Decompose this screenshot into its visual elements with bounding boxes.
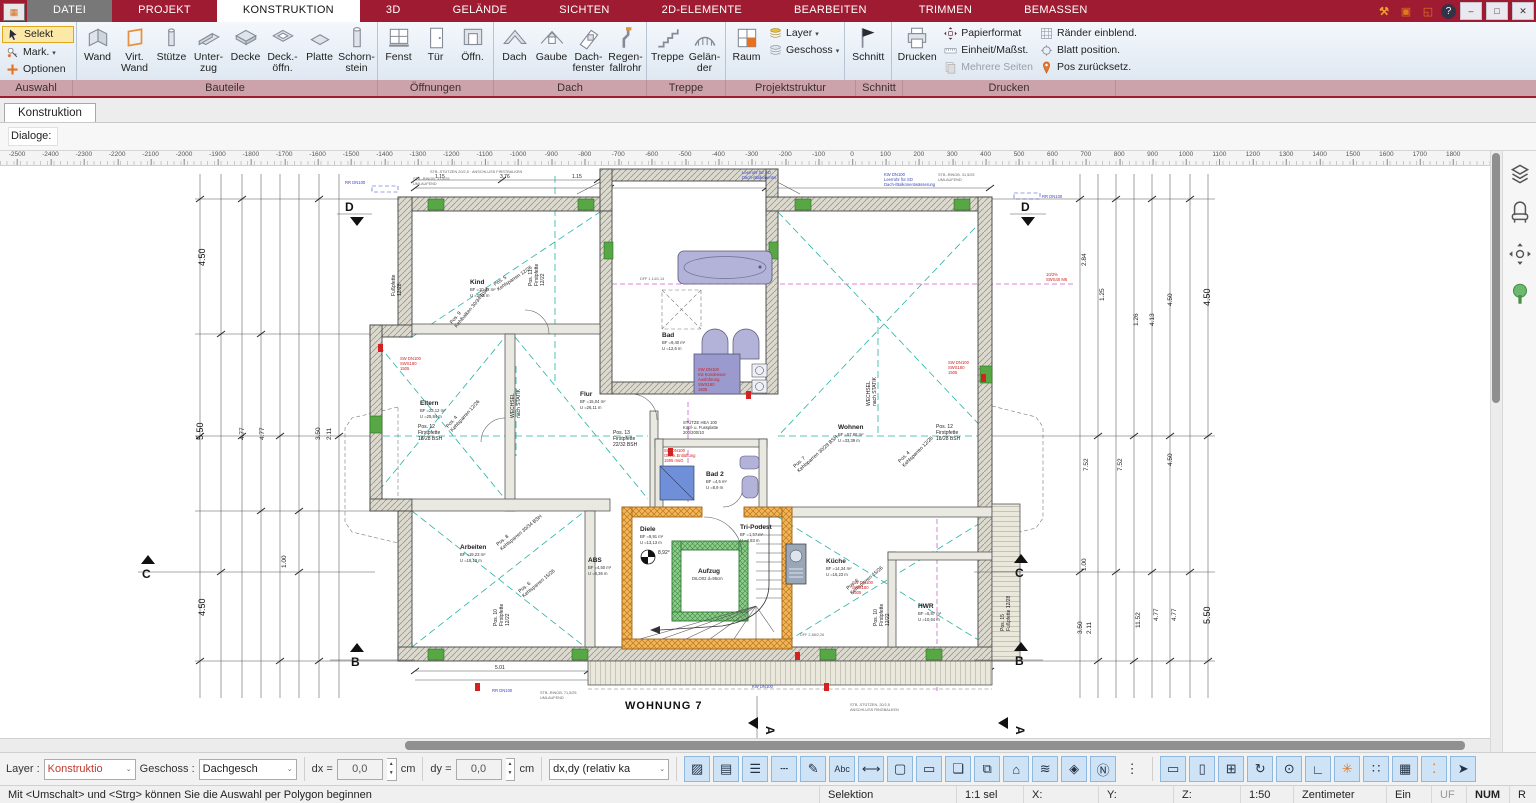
tab-2d-elemente[interactable]: 2D-ELEMENTE bbox=[636, 0, 768, 22]
dialog-bar: Dialoge: bbox=[0, 123, 1536, 151]
downpipe-icon bbox=[623, 27, 631, 48]
ruler-icon[interactable]: ▭ bbox=[1160, 756, 1186, 782]
app-icon[interactable]: ▦ bbox=[3, 3, 25, 21]
ruler-label: 300 bbox=[947, 151, 958, 158]
svg-text:1595 müG: 1595 müG bbox=[664, 458, 684, 463]
svg-text:C: C bbox=[142, 567, 151, 581]
svg-text:U =16,23 m: U =16,23 m bbox=[826, 572, 848, 577]
ruler-label: 600 bbox=[1047, 151, 1058, 158]
roof-window-label: Dach- fenster bbox=[572, 52, 604, 74]
ruler-label: -1300 bbox=[409, 151, 426, 158]
document-tab-konstruktion[interactable]: Konstruktion bbox=[4, 103, 96, 122]
opening-button[interactable]: Öffn. bbox=[454, 23, 491, 79]
multiple-pages-button[interactable]: Mehrere Seiten bbox=[940, 60, 1036, 75]
ruler-label: -1400 bbox=[376, 151, 393, 158]
dx-unit: cm bbox=[401, 763, 416, 775]
fill-color-icon[interactable]: ▤ bbox=[713, 756, 739, 782]
dimension-chain-left: 4.50 5.50 4.50 4.77 4.77 1.00 3.50 2.11 bbox=[195, 174, 398, 698]
dimension-icon[interactable]: ⟷ bbox=[858, 756, 884, 782]
downpipe-button[interactable]: Regen- fallrohr bbox=[607, 23, 644, 79]
svg-text:1505: 1505 bbox=[400, 366, 410, 371]
opening-icon bbox=[464, 29, 481, 44]
svg-text:BF =19,23 m²: BF =19,23 m² bbox=[460, 552, 486, 557]
svg-text:DFF 2,88/2,26: DFF 2,88/2,26 bbox=[800, 633, 824, 637]
svg-text:C: C bbox=[1015, 566, 1024, 580]
svg-text:22/32 BSH: 22/32 BSH bbox=[613, 442, 638, 448]
vegetation-icon[interactable] bbox=[1507, 281, 1533, 307]
options-button[interactable]: Optionen bbox=[2, 62, 74, 77]
vertical-scrollbar[interactable] bbox=[1491, 151, 1503, 752]
document-tab-strip: Konstruktion bbox=[0, 98, 1536, 123]
svg-text:12/22: 12/22 bbox=[505, 613, 511, 626]
layer-label: Layer bbox=[786, 28, 812, 39]
svg-text:U =33,39 m: U =33,39 m bbox=[838, 438, 860, 443]
svg-text:5.50: 5.50 bbox=[195, 422, 205, 440]
ruler-label: -300 bbox=[745, 151, 758, 158]
svg-text:Eltern: Eltern bbox=[420, 400, 438, 407]
svg-text:U =25,84 m: U =25,84 m bbox=[420, 414, 442, 419]
svg-text:3.50: 3.50 bbox=[1077, 621, 1084, 634]
dy-unit: cm bbox=[519, 763, 534, 775]
plus-icon bbox=[8, 65, 18, 75]
storey-combobox[interactable]: Dachgesch⌄ bbox=[199, 759, 297, 780]
svg-text:nach STATIK: nach STATIK bbox=[516, 388, 522, 418]
beam-button[interactable]: Unter- zug bbox=[190, 23, 227, 79]
pan-view-icon[interactable] bbox=[1507, 241, 1533, 267]
settings-tools-icon[interactable]: ⚒ bbox=[1375, 3, 1393, 19]
bottom-toolbar: Layer : Konstruktio⌄ Geschoss : Dachgesc… bbox=[0, 752, 1536, 785]
horizontal-scrollbar[interactable] bbox=[0, 738, 1490, 752]
line-weight-icon[interactable]: ☰ bbox=[742, 756, 768, 782]
bath-cabinet: SW DN100 mit Kondensat- Ausführung SWS18… bbox=[694, 354, 740, 394]
svg-text:2.84: 2.84 bbox=[1081, 253, 1088, 266]
ruler-label: 500 bbox=[1014, 151, 1025, 158]
multiple-pages-icon bbox=[946, 63, 955, 74]
svg-text:4.50: 4.50 bbox=[1167, 453, 1174, 466]
beam-icon bbox=[199, 34, 219, 45]
stairs-label: Treppe bbox=[651, 52, 684, 63]
svg-text:200/200/10: 200/200/10 bbox=[683, 430, 705, 435]
ruler-label: 700 bbox=[1080, 151, 1091, 158]
svg-text:SWS40 M6: SWS40 M6 bbox=[1046, 277, 1068, 282]
svg-text:1.26: 1.26 bbox=[1133, 313, 1140, 326]
svg-text:UMLAUFEND: UMLAUFEND bbox=[413, 182, 437, 186]
svg-text:D: D bbox=[345, 200, 354, 214]
sheet-position-icon bbox=[1041, 45, 1052, 56]
svg-text:Kehlsparren 30/34 BSH: Kehlsparren 30/34 BSH bbox=[499, 514, 543, 553]
ruler-label: 1300 bbox=[1279, 151, 1293, 158]
tab-bearbeiten[interactable]: BEARBEITEN bbox=[768, 0, 893, 22]
storey-field-label: Geschoss : bbox=[140, 763, 195, 775]
ruler-label: -900 bbox=[545, 151, 558, 158]
svg-text:DILO02 d=95cm: DILO02 d=95cm bbox=[692, 576, 723, 581]
svg-text:D: D bbox=[1021, 200, 1030, 214]
ruler-label: -1000 bbox=[510, 151, 527, 158]
rotate-view-icon[interactable]: ↻ bbox=[1247, 756, 1273, 782]
dy-stepper[interactable]: ▲▼ bbox=[506, 758, 516, 781]
north-icon[interactable]: Ⓝ bbox=[1090, 756, 1116, 782]
dormer-button[interactable]: Gaube bbox=[533, 23, 570, 79]
plate-button[interactable]: Platte bbox=[301, 23, 338, 79]
ruler-label: -800 bbox=[578, 151, 591, 158]
svg-text:nach STATIK: nach STATIK bbox=[872, 376, 878, 406]
status-selection-scale: 1:1 sel bbox=[956, 786, 1023, 803]
terrace-strip bbox=[992, 504, 1020, 661]
unit-scale-icon bbox=[945, 49, 956, 53]
layer-button[interactable]: Layer▾ bbox=[765, 26, 842, 41]
svg-text:8,92°: 8,92° bbox=[658, 550, 670, 556]
page-icon[interactable]: ▯ bbox=[1189, 756, 1215, 782]
tab-gel-nde[interactable]: GELÄNDE bbox=[427, 0, 534, 22]
wall-label: Wand bbox=[84, 52, 111, 63]
virtual-wall-icon bbox=[128, 29, 141, 45]
svg-text:1505: 1505 bbox=[948, 370, 958, 375]
unit-scale-label: Einheit/Maßst. bbox=[961, 45, 1028, 56]
roof-label: Dach bbox=[502, 52, 527, 63]
svg-text:1.00: 1.00 bbox=[281, 555, 288, 568]
status-r: R bbox=[1509, 786, 1536, 803]
paper-format-label: Papierformat bbox=[961, 28, 1021, 39]
select-label: Selekt bbox=[24, 29, 53, 40]
svg-text:Dach-/Balkonentw.: Dach-/Balkonentw. bbox=[742, 175, 777, 180]
status-unit: Zentimeter bbox=[1293, 786, 1386, 803]
svg-text:5.50: 5.50 bbox=[1202, 606, 1212, 624]
roof-icon bbox=[504, 30, 526, 43]
room-label: Raum bbox=[732, 52, 760, 63]
dormer-icon bbox=[541, 32, 563, 44]
group-caption-schnitt: Schnitt bbox=[856, 80, 903, 96]
tile-icon[interactable]: ◈ bbox=[1061, 756, 1087, 782]
ruler-label: -2300 bbox=[75, 151, 92, 158]
tab-konstruktion[interactable]: KONSTRUKTION bbox=[217, 0, 360, 22]
svg-text:BF =1,57 m²: BF =1,57 m² bbox=[740, 532, 764, 537]
drawing-canvas[interactable]: 4.50 5.50 4.50 4.77 4.77 1.00 3.50 2.11 bbox=[0, 166, 1490, 738]
railing-label: Gelän- der bbox=[689, 52, 721, 74]
balcony-strip bbox=[588, 661, 992, 685]
section-label: Schnitt bbox=[852, 52, 884, 63]
unit-scale-button[interactable]: Einheit/Maßst. bbox=[940, 43, 1036, 58]
monitor-icon[interactable]: ◱ bbox=[1419, 3, 1437, 19]
paper-format-button[interactable]: Papierformat bbox=[940, 26, 1036, 41]
svg-text:1.25: 1.25 bbox=[1099, 288, 1106, 301]
corner-icon[interactable]: ∟ bbox=[1305, 756, 1331, 782]
ruler-label: -1100 bbox=[477, 151, 493, 158]
grid-snap-icon[interactable]: ∷ bbox=[1363, 756, 1389, 782]
svg-text:Bad: Bad bbox=[662, 332, 674, 339]
dx-label: dx = bbox=[312, 763, 333, 775]
status-ein: Ein bbox=[1386, 786, 1431, 803]
svg-text:B: B bbox=[1015, 654, 1024, 668]
status-z: Z: bbox=[1173, 786, 1240, 803]
svg-text:STB.-RINGB. 31,5/25: STB.-RINGB. 31,5/25 bbox=[413, 177, 450, 181]
svg-text:U =10,64 m: U =10,64 m bbox=[918, 617, 940, 622]
room-button[interactable]: Raum bbox=[728, 23, 765, 79]
svg-text:2.11: 2.11 bbox=[1086, 621, 1093, 634]
ref-point-icon[interactable]: ⊙ bbox=[1276, 756, 1302, 782]
svg-text:Kind: Kind bbox=[470, 279, 484, 286]
bathtub bbox=[678, 251, 772, 284]
ceiling-opening-button[interactable]: Deck.- öffn. bbox=[264, 23, 301, 79]
layer-combobox[interactable]: Konstruktio⌄ bbox=[44, 759, 136, 780]
show-margins-icon bbox=[1042, 29, 1052, 39]
svg-text:BF =4,50 m²: BF =4,50 m² bbox=[588, 565, 612, 570]
roof-window-icon bbox=[580, 30, 597, 48]
window-button[interactable]: Fenst bbox=[380, 23, 417, 79]
tab-bemassen[interactable]: BEMASSEN bbox=[998, 0, 1114, 22]
svg-text:18/28 BSH: 18/28 BSH bbox=[418, 436, 443, 442]
sheet-position-button[interactable]: Blatt position. bbox=[1036, 43, 1140, 58]
ruler-label: 1100 bbox=[1212, 151, 1226, 158]
svg-text:4.50: 4.50 bbox=[1202, 288, 1212, 306]
storey-icon bbox=[771, 46, 781, 55]
pen-icon[interactable]: ✎ bbox=[800, 756, 826, 782]
storey-label: Geschoss bbox=[786, 45, 833, 56]
ruler-label: 1500 bbox=[1346, 151, 1360, 158]
wall-icon bbox=[89, 29, 106, 45]
ceiling-opening-icon bbox=[273, 30, 293, 41]
storey-value: Dachgesch bbox=[203, 763, 258, 775]
floor-plan: 4.50 5.50 4.50 4.77 4.77 1.00 3.50 2.11 bbox=[0, 166, 1490, 738]
ruler-label: 100 bbox=[880, 151, 891, 158]
ruler-label: 0 bbox=[850, 151, 854, 158]
ceiling-opening-label: Deck.- öffn. bbox=[267, 52, 297, 74]
show-margins-button[interactable]: Ränder einblend. bbox=[1036, 26, 1140, 41]
svg-text:BF =14,34 m²: BF =14,34 m² bbox=[826, 566, 852, 571]
snap-point-icon[interactable]: ✳ bbox=[1334, 756, 1360, 782]
svg-text:RR DN100: RR DN100 bbox=[345, 180, 366, 185]
tab-trimmen[interactable]: TRIMMEN bbox=[893, 0, 998, 22]
group-caption-oeffnungen: Öffnungen bbox=[378, 80, 494, 96]
line-style-icon[interactable]: ┄ bbox=[771, 756, 797, 782]
horizontal-scroll-thumb[interactable] bbox=[405, 741, 1465, 750]
svg-text:DFF 1,14/1,14: DFF 1,14/1,14 bbox=[640, 277, 664, 281]
svg-text:12/28: 12/28 bbox=[397, 283, 403, 296]
kitchen-sink bbox=[786, 544, 806, 584]
svg-text:BF =9,40 m²: BF =9,40 m² bbox=[662, 340, 686, 345]
status-mode: Selektion bbox=[819, 786, 956, 803]
svg-text:12/22: 12/22 bbox=[885, 613, 891, 626]
dx-stepper[interactable]: ▲▼ bbox=[387, 758, 397, 781]
svg-text:U =8,9 m: U =8,9 m bbox=[706, 485, 724, 490]
svg-text:Wohnen: Wohnen bbox=[838, 424, 864, 431]
ruler-label: -200 bbox=[779, 151, 792, 158]
grid-icon[interactable]: ▦ bbox=[1392, 756, 1418, 782]
reset-position-label: Pos zurücksetz. bbox=[1057, 62, 1131, 73]
ruler-label: -2400 bbox=[42, 151, 59, 158]
column-button[interactable]: Stütze bbox=[153, 23, 190, 79]
ceiling-icon bbox=[236, 30, 256, 44]
print-button[interactable]: Drucken bbox=[894, 23, 940, 79]
dy-input[interactable]: 0,0 bbox=[456, 759, 502, 780]
sheet-position-label: Blatt position. bbox=[1057, 45, 1120, 56]
coordinate-mode-value: dx,dy (relativ ka bbox=[553, 763, 630, 775]
railing-button[interactable]: Gelän- der bbox=[686, 23, 723, 79]
svg-text:Diele: Diele bbox=[640, 526, 656, 533]
svg-text:A: A bbox=[1013, 726, 1027, 735]
ceiling-label: Decke bbox=[231, 52, 261, 63]
furniture-icon[interactable] bbox=[1507, 201, 1533, 227]
ruler-label: -700 bbox=[612, 151, 625, 158]
virtual-wall-button[interactable]: Virt. Wand bbox=[116, 23, 153, 79]
svg-text:B: B bbox=[351, 655, 360, 669]
svg-text:BF =23,12 m²: BF =23,12 m² bbox=[420, 408, 446, 413]
svg-text:BF =9,91 m²: BF =9,91 m² bbox=[640, 534, 664, 539]
column-label: Stütze bbox=[157, 52, 187, 63]
group-caption-auswahl: Auswahl bbox=[0, 80, 73, 96]
virtual-wall-label: Virt. Wand bbox=[121, 52, 148, 74]
column-icon bbox=[168, 29, 173, 46]
svg-text:1505: 1505 bbox=[852, 590, 862, 595]
reset-position-button[interactable]: Pos zurücksetz. bbox=[1036, 60, 1140, 75]
svg-text:Aufzug: Aufzug bbox=[698, 568, 720, 575]
horizontal-ruler: -2500-2400-2300-2200-2100-2000-1900-1800… bbox=[0, 151, 1490, 166]
ruler-label: -1800 bbox=[242, 151, 259, 158]
svg-text:7.52: 7.52 bbox=[1083, 458, 1090, 471]
status-uf: UF bbox=[1431, 786, 1466, 803]
cursor-icon bbox=[9, 29, 17, 41]
north-symbol: 8,92° bbox=[641, 550, 670, 564]
svg-text:U =18,13 m: U =18,13 m bbox=[460, 558, 482, 563]
svg-text:4.77: 4.77 bbox=[239, 427, 246, 440]
ruler-label: -1900 bbox=[209, 151, 226, 158]
coordinate-mode-combobox[interactable]: dx,dy (relativ ka⌄ bbox=[549, 759, 669, 780]
stairs-icon bbox=[658, 29, 678, 46]
ruler-label: 1700 bbox=[1413, 151, 1427, 158]
svg-text:U =26,11 m: U =26,11 m bbox=[580, 405, 602, 410]
ruler-label: 1400 bbox=[1312, 151, 1326, 158]
text-abc-icon[interactable]: Abc bbox=[829, 756, 855, 782]
tab-3d[interactable]: 3D bbox=[360, 0, 427, 22]
dialoge-label: Dialoge: bbox=[8, 127, 58, 146]
svg-text:3.76: 3.76 bbox=[500, 174, 510, 180]
status-num: NUM bbox=[1466, 786, 1509, 803]
snap-settings-icon[interactable]: ⁚ bbox=[1421, 756, 1447, 782]
tab-projekt[interactable]: PROJEKT bbox=[112, 0, 217, 22]
marquee-icon[interactable]: ▢ bbox=[887, 756, 913, 782]
select-button[interactable]: Selekt bbox=[2, 26, 74, 43]
dormer-label: Gaube bbox=[536, 52, 568, 63]
beam-label: Unter- zug bbox=[194, 52, 223, 74]
group-caption-projektstruktur: Projektstruktur bbox=[726, 80, 856, 96]
roof-tool-icon[interactable]: ⌂ bbox=[1003, 756, 1029, 782]
chimney-button[interactable]: Schorn- stein bbox=[338, 23, 375, 79]
svg-text:18/28 BSH: 18/28 BSH bbox=[936, 436, 961, 442]
status-x: X: bbox=[1023, 786, 1098, 803]
ruler-label: 1000 bbox=[1179, 151, 1193, 158]
ruler-label: -2100 bbox=[142, 151, 159, 158]
section-button[interactable]: Schnitt bbox=[847, 23, 889, 79]
copy-layers-icon[interactable]: ❏ bbox=[945, 756, 971, 782]
deselect-cursor-icon[interactable]: ➤ bbox=[1450, 756, 1476, 782]
multiple-pages-label: Mehrere Seiten bbox=[961, 62, 1033, 73]
ceiling-button[interactable]: Decke bbox=[227, 23, 264, 79]
minimize-button[interactable]: – bbox=[1460, 2, 1482, 20]
layer-stack-icon[interactable]: ≋ bbox=[1032, 756, 1058, 782]
svg-text:U =8,36 m: U =8,36 m bbox=[588, 571, 608, 576]
ruler-label: -2200 bbox=[109, 151, 126, 158]
svg-text:5.01: 5.01 bbox=[495, 665, 505, 671]
group-caption-bauteile: Bauteile bbox=[73, 80, 378, 96]
door-icon bbox=[430, 28, 442, 48]
more-dots-icon[interactable]: ⋮ bbox=[1119, 756, 1145, 782]
svg-text:4.50: 4.50 bbox=[197, 248, 207, 266]
module-icon[interactable]: ▣ bbox=[1397, 3, 1415, 19]
dy-label: dy = bbox=[430, 763, 451, 775]
restore-button[interactable]: □ bbox=[1486, 2, 1508, 20]
group-caption-drucken: Drucken bbox=[903, 80, 1116, 96]
help-icon[interactable]: ? bbox=[1441, 4, 1456, 19]
wall-button[interactable]: Wand bbox=[79, 23, 116, 79]
ruler-label: -100 bbox=[812, 151, 825, 158]
window-icon bbox=[389, 29, 409, 46]
roof-button[interactable]: Dach bbox=[496, 23, 533, 79]
room-icon bbox=[738, 29, 755, 46]
downpipe-label: Regen- fallrohr bbox=[608, 52, 642, 74]
ruler-label: -2000 bbox=[176, 151, 193, 158]
mark-button[interactable]: Mark.▾ bbox=[2, 45, 74, 60]
roof-window-button[interactable]: Dach- fenster bbox=[570, 23, 607, 79]
reset-position-icon bbox=[1043, 62, 1049, 73]
railing-icon bbox=[695, 37, 715, 45]
rectangle-icon[interactable]: ▭ bbox=[916, 756, 942, 782]
svg-text:4.50: 4.50 bbox=[1167, 293, 1174, 306]
vertical-scroll-thumb[interactable] bbox=[1492, 153, 1500, 403]
chimney-label: Schorn- stein bbox=[338, 52, 375, 74]
mark-icon bbox=[8, 48, 17, 57]
status-bar: Mit <Umschalt> und <Strg> können Sie die… bbox=[0, 785, 1536, 803]
ruler-label: -1500 bbox=[343, 151, 360, 158]
ruler-label: -1200 bbox=[443, 151, 460, 158]
door-button[interactable]: Tür bbox=[417, 23, 454, 79]
ruler-label: -500 bbox=[678, 151, 691, 158]
svg-text:STB.-RINGB. 31,5/25: STB.-RINGB. 31,5/25 bbox=[938, 173, 975, 177]
window-grid-icon[interactable]: ⊞ bbox=[1218, 756, 1244, 782]
printer-icon bbox=[909, 28, 926, 48]
ruler-label: 1800 bbox=[1446, 151, 1460, 158]
svg-text:Tri-Podest: Tri-Podest bbox=[740, 524, 773, 531]
storey-button[interactable]: Geschoss▾ bbox=[765, 43, 842, 58]
svg-text:RR DN100: RR DN100 bbox=[1042, 194, 1063, 199]
group-caption-treppe: Treppe bbox=[647, 80, 726, 96]
svg-text:UMLAUFEND: UMLAUFEND bbox=[938, 178, 962, 182]
ruler-label: -400 bbox=[712, 151, 725, 158]
plan-title: WOHNUNG 7 bbox=[625, 700, 702, 712]
door-label: Tür bbox=[428, 52, 444, 63]
opening-label: Öffn. bbox=[461, 52, 484, 63]
svg-text:1505: 1505 bbox=[698, 387, 708, 392]
tab-sichten[interactable]: SICHTEN bbox=[533, 0, 635, 22]
move-copy-icon[interactable]: ⧉ bbox=[974, 756, 1000, 782]
plate-label: Platte bbox=[306, 52, 333, 63]
show-margins-label: Ränder einblend. bbox=[1057, 28, 1137, 39]
plate-icon bbox=[311, 35, 328, 45]
ruler-label: -600 bbox=[645, 151, 658, 158]
layers-panes-icon[interactable] bbox=[1507, 161, 1533, 187]
svg-text:STB.-STÜTZEN, 20/2,5: STB.-STÜTZEN, 20/2,5 bbox=[850, 703, 890, 707]
svg-text:Küche: Küche bbox=[826, 558, 846, 565]
svg-text:4.13: 4.13 bbox=[1149, 313, 1156, 326]
svg-text:Dach-/Balkonentwässerung: Dach-/Balkonentwässerung bbox=[884, 182, 936, 187]
dx-input[interactable]: 0,0 bbox=[337, 759, 383, 780]
svg-text:Fußpfette 12/28: Fußpfette 12/28 bbox=[1006, 595, 1012, 631]
close-button[interactable]: ✕ bbox=[1512, 2, 1534, 20]
stairs-button[interactable]: Treppe bbox=[649, 23, 686, 79]
hatch-icon[interactable]: ▨ bbox=[684, 756, 710, 782]
print-label: Drucken bbox=[898, 52, 937, 63]
tab-datei[interactable]: DATEI bbox=[27, 0, 112, 22]
ruler-label: 1200 bbox=[1246, 151, 1260, 158]
appliances bbox=[752, 364, 767, 393]
